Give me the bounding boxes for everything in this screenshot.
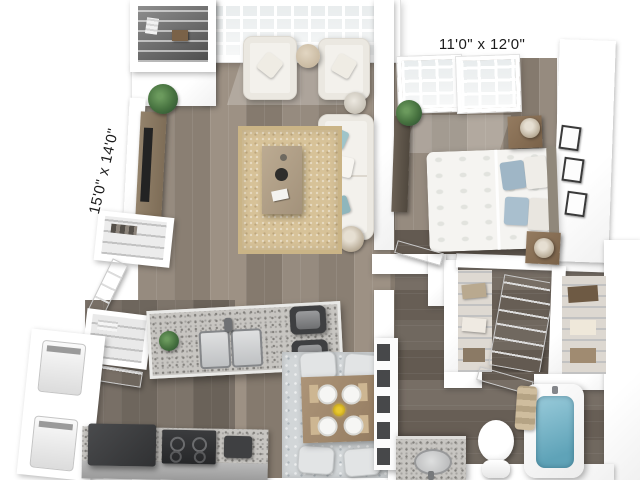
throw-pillow [256, 51, 284, 79]
decor-bowl [275, 168, 288, 181]
round-side-table [296, 44, 320, 68]
plate [341, 384, 362, 405]
book [271, 188, 289, 201]
bedroom-plant [396, 100, 422, 126]
wall-art-frame [561, 157, 584, 184]
burner [170, 437, 185, 452]
table-lamp [520, 118, 540, 138]
toilet-bowl [478, 420, 514, 462]
flower-centerpiece [333, 404, 345, 416]
dining-chair [297, 445, 335, 475]
hanging-clothes [461, 283, 486, 299]
table-lamp [534, 238, 554, 258]
toilet [478, 420, 514, 480]
tub-water [536, 396, 574, 468]
washer [37, 340, 86, 396]
armchair [318, 38, 370, 100]
entry-closet [130, 0, 216, 72]
blue-pillow [504, 197, 529, 226]
floorplan-render: 11'0" x 12'0" 15'0" x 14'0" [0, 0, 640, 480]
bar-stool [289, 305, 326, 335]
toilet-tank [482, 460, 510, 478]
living-dimension-label: 15'0" x 14'0" [86, 127, 122, 216]
plate [317, 416, 338, 437]
small-appliance [224, 436, 252, 458]
dryer [29, 415, 78, 471]
range [162, 430, 217, 465]
sink-basin [230, 328, 263, 368]
wall-art-frame [564, 191, 587, 218]
bedroom-window [456, 55, 521, 113]
wall [552, 39, 616, 263]
walkin-closet-right [562, 276, 606, 374]
pantry-shelves [101, 216, 167, 260]
plate [317, 384, 338, 405]
storage-bin [570, 320, 596, 335]
burner [170, 451, 182, 463]
pantry-closet [94, 210, 175, 268]
wall [444, 260, 458, 382]
storage-bin [570, 348, 596, 363]
burner [194, 451, 206, 463]
dining-table [301, 375, 377, 444]
tub-faucet [552, 386, 558, 394]
refrigerator [88, 423, 157, 466]
wall [604, 240, 640, 480]
armchair [243, 36, 297, 100]
hanging-clothes [461, 317, 486, 333]
dryer-controls [39, 421, 73, 431]
closet-panel-door [488, 274, 550, 372]
wall-art-frame [558, 125, 581, 152]
rolled-towels [514, 385, 537, 430]
faucet [224, 318, 233, 332]
storage-bin [463, 348, 485, 362]
potted-plant [148, 84, 178, 114]
storage-box [172, 30, 188, 41]
decor-item [280, 154, 287, 161]
sink-basin [198, 330, 231, 370]
dresser [391, 116, 410, 212]
throw-pillow [330, 52, 357, 79]
bathroom-vanity [396, 436, 466, 480]
burner [192, 437, 207, 452]
linens-stack [145, 17, 159, 35]
white-pillow [523, 155, 548, 189]
wall [374, 0, 394, 250]
shelf-unit [374, 338, 398, 470]
kitchen-plant [158, 330, 179, 351]
shelf-slots [377, 343, 390, 465]
tv [140, 128, 153, 202]
decor-vase [344, 92, 366, 114]
blue-pillow [499, 160, 527, 191]
vanity-faucet [428, 471, 434, 480]
bedroom-dimension-label: 11'0" x 12'0" [412, 36, 552, 53]
coffee-table [262, 146, 302, 214]
sunlight-patch [404, 115, 511, 153]
washer-controls [47, 345, 81, 355]
walkin-closet-left [458, 270, 550, 372]
hanging-clothes [567, 285, 598, 303]
